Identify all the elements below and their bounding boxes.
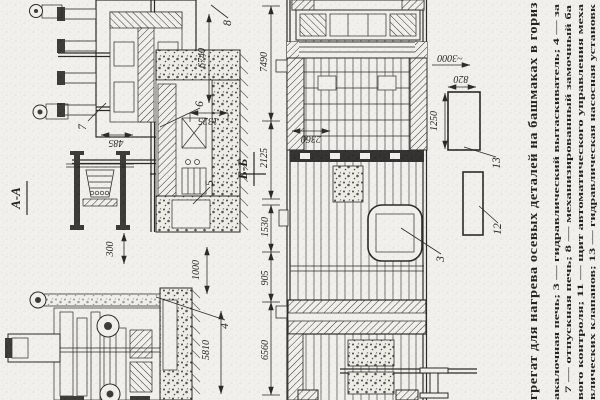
figure-drawing: 7490 2125 1530 905 6560 6740 1325 485 30… [0,0,600,400]
scan-noise-overlay [0,0,600,400]
scanned-drawing-page: 7490 2125 1530 905 6560 6740 1325 485 30… [0,0,600,400]
